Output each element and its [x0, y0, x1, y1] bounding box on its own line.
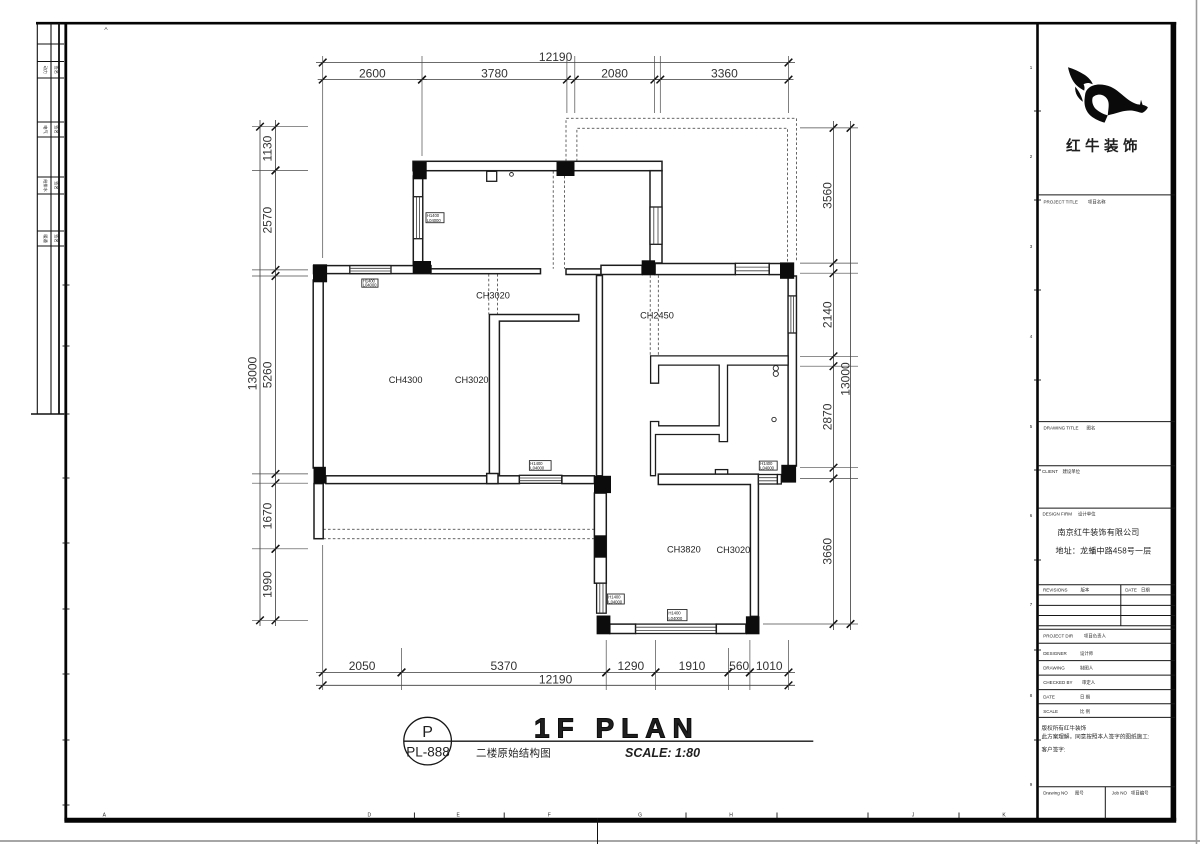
svg-text:REVISIONS: REVISIONS — [1043, 588, 1068, 593]
svg-text:CH3020: CH3020 — [476, 291, 510, 301]
svg-text:1670: 1670 — [261, 502, 275, 529]
svg-text:PL-888: PL-888 — [406, 745, 450, 760]
svg-text:签名: 签名 — [53, 66, 60, 74]
svg-text:2600: 2600 — [359, 67, 386, 81]
svg-text:CLIENT: CLIENT — [1042, 469, 1058, 474]
svg-text:SCALE: 1:80: SCALE: 1:80 — [625, 746, 700, 760]
svg-text:建设单位: 建设单位 — [1063, 468, 1081, 475]
svg-text:H1400: H1400 — [668, 611, 681, 616]
svg-text:设计单位: 设计单位 — [1078, 510, 1096, 517]
svg-text:签名: 签名 — [53, 125, 60, 133]
svg-text:5370: 5370 — [490, 659, 517, 673]
svg-text:DRAWING TITLE: DRAWING TITLE — [1044, 426, 1079, 431]
svg-text:电气: 电气 — [43, 125, 49, 134]
svg-text:Drawing NO: Drawing NO — [1043, 791, 1068, 796]
svg-text:项目负责人: 项目负责人 — [1084, 633, 1107, 640]
svg-text:2870: 2870 — [821, 403, 835, 430]
svg-text:3560: 3560 — [821, 182, 835, 209]
svg-text:13000: 13000 — [839, 362, 853, 396]
svg-text:项目名称: 项目名称 — [1088, 198, 1106, 205]
svg-text:1990: 1990 — [261, 571, 275, 598]
svg-text:L04000: L04000 — [530, 466, 544, 471]
svg-text:CH3020: CH3020 — [717, 545, 751, 555]
svg-text:L04000: L04000 — [608, 599, 622, 604]
svg-text:3660: 3660 — [821, 538, 835, 565]
svg-text:DESIGN FIRM: DESIGN FIRM — [1043, 511, 1073, 516]
svg-text:L04000: L04000 — [363, 283, 377, 288]
svg-text:2080: 2080 — [601, 67, 628, 81]
svg-text:暖通: 暖通 — [42, 234, 49, 243]
svg-text:CH2450: CH2450 — [640, 311, 674, 321]
svg-text:CHECKED BY: CHECKED BY — [1043, 680, 1072, 685]
svg-text:审定人: 审定人 — [1082, 679, 1096, 686]
svg-text:此方案理解，同意按照本人签字的图纸施工:: 此方案理解，同意按照本人签字的图纸施工: — [1042, 733, 1150, 741]
svg-text:地址：龙蟠中路458号一层: 地址：龙蟠中路458号一层 — [1056, 545, 1152, 555]
svg-text:二楼原始结构图: 二楼原始结构图 — [476, 747, 551, 760]
svg-text:PROJECT DIR: PROJECT DIR — [1043, 634, 1074, 639]
svg-text:版权所有红牛装饰: 版权所有红牛装饰 — [1042, 724, 1087, 732]
svg-text:12190: 12190 — [539, 50, 573, 64]
svg-text:PROJECT TITLE: PROJECT TITLE — [1044, 199, 1078, 204]
svg-text:图名: 图名 — [1087, 425, 1096, 432]
svg-text:1010: 1010 — [756, 659, 783, 673]
svg-text:1910: 1910 — [679, 659, 706, 673]
svg-text:红牛装饰: 红牛装饰 — [1066, 137, 1142, 155]
svg-text:5260: 5260 — [261, 361, 275, 388]
svg-text:SCALE: SCALE — [1043, 709, 1058, 714]
svg-text:给排水: 给排水 — [42, 179, 49, 192]
svg-text:制图人: 制图人 — [1080, 664, 1094, 671]
svg-text:客户签字:: 客户签字: — [1042, 746, 1066, 754]
svg-text:G: G — [638, 813, 642, 819]
svg-text:DATE: DATE — [1043, 694, 1055, 699]
svg-text:560: 560 — [729, 659, 749, 673]
svg-text:设计师: 设计师 — [1080, 650, 1094, 657]
svg-text:DRAWING: DRAWING — [1043, 665, 1065, 670]
svg-text:L04000: L04000 — [668, 616, 682, 621]
svg-text:签名: 签名 — [53, 181, 60, 189]
svg-text:签名: 签名 — [53, 234, 60, 242]
svg-text:12190: 12190 — [539, 672, 573, 686]
svg-text:L04000: L04000 — [760, 466, 774, 471]
svg-text:Job NO: Job NO — [1112, 791, 1128, 796]
svg-text:F: F — [548, 813, 551, 819]
svg-text:南京红牛装饰有限公司: 南京红牛装饰有限公司 — [1058, 527, 1140, 537]
svg-text:P: P — [422, 724, 433, 741]
svg-text:2140: 2140 — [821, 301, 835, 328]
svg-text:1130: 1130 — [261, 135, 275, 161]
svg-text:3360: 3360 — [711, 67, 738, 81]
svg-text:3780: 3780 — [481, 67, 508, 81]
svg-text:CH4300: CH4300 — [389, 375, 423, 385]
svg-text:1290: 1290 — [617, 659, 644, 673]
svg-text:1F PLAN: 1F PLAN — [534, 713, 700, 744]
svg-text:CH3820: CH3820 — [667, 545, 701, 555]
svg-text:H: H — [729, 813, 733, 819]
svg-text:DATE: DATE — [1125, 588, 1137, 593]
svg-text:D: D — [367, 813, 371, 819]
svg-text:DESIGNER: DESIGNER — [1043, 651, 1067, 656]
svg-text:动力: 动力 — [42, 66, 49, 74]
svg-text:CH3020: CH3020 — [455, 375, 489, 385]
svg-text:L04000: L04000 — [427, 218, 441, 223]
svg-text:版本: 版本 — [1081, 587, 1090, 594]
svg-text:项目编号: 项目编号 — [1131, 790, 1149, 797]
svg-text:比 例: 比 例 — [1080, 708, 1091, 715]
svg-text:2570: 2570 — [261, 206, 275, 233]
svg-text:13000: 13000 — [246, 356, 260, 390]
svg-text:2050: 2050 — [349, 659, 376, 673]
